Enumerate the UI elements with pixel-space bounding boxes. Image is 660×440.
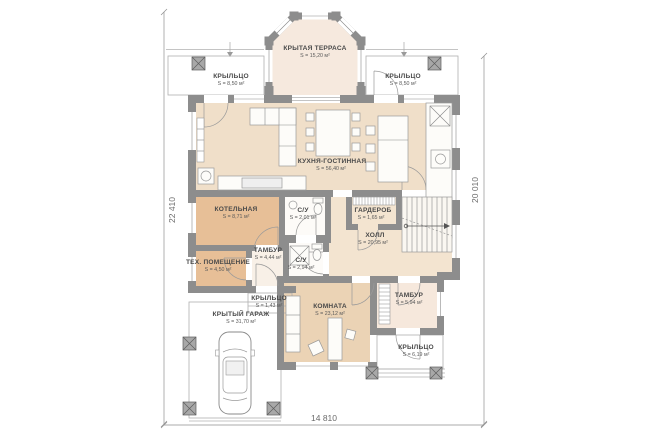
sink <box>289 201 297 209</box>
column <box>183 337 196 350</box>
label-porch-bottom-right: КРЫЛЬЦО <box>398 344 434 351</box>
desk <box>328 318 342 360</box>
wardrobe-shelf <box>353 197 395 205</box>
svg-text:S = 4,44 м²: S = 4,44 м² <box>255 255 282 261</box>
stairs <box>402 197 452 252</box>
label-vestibule-1: ТАМБУР <box>254 247 283 254</box>
floor-plan-canvas: КРЫТАЯ ТЕРРАСА S = 15,20 м² КРЫЛЬЦО S = … <box>0 0 660 440</box>
label-tech-room: ТЕХ. ПОМЕЩЕНИЕ <box>186 259 250 266</box>
label-covered-garage: КРЫТЫЙ ГАРАЖ <box>213 309 270 318</box>
svg-text:S = 15,20 м²: S = 15,20 м² <box>300 53 330 59</box>
label-hall: ХОЛЛ <box>365 232 384 239</box>
dimension-bottom: 14 810 <box>311 413 337 423</box>
column <box>366 367 378 379</box>
vestibule2-closet <box>379 284 390 324</box>
boiler-floor <box>196 197 279 245</box>
column <box>430 367 442 379</box>
svg-text:S = 8,50 м²: S = 8,50 м² <box>390 81 417 87</box>
label-wc-1: С/У <box>297 207 309 214</box>
column <box>192 57 205 70</box>
dimension-right: 20 010 <box>470 177 480 203</box>
svg-text:S = 23,12 м²: S = 23,12 м² <box>315 311 345 317</box>
label-room: КОМНАТА <box>313 303 347 310</box>
column <box>183 402 196 415</box>
label-wardrobe: ГАРДЕРОБ <box>355 207 392 214</box>
car <box>216 332 255 414</box>
floor-plan-drawing: КРЫТАЯ ТЕРРАСА S = 15,20 м² КРЫЛЬЦО S = … <box>0 0 660 440</box>
svg-text:S = 2,94 м²: S = 2,94 м² <box>288 265 315 271</box>
label-wc-2: С/У <box>295 257 307 264</box>
label-kitchen-living: КУХНЯ-ГОСТИННАЯ <box>298 158 367 165</box>
svg-text:S = 4,50 м²: S = 4,50 м² <box>205 267 232 273</box>
tv-bench <box>218 176 306 190</box>
label-porch-top-right: КРЫЛЬЦО <box>385 73 421 80</box>
fireplace <box>198 168 214 184</box>
svg-text:S = 31,70 м²: S = 31,70 м² <box>226 319 256 325</box>
svg-text:S = 6,19 м²: S = 6,19 м² <box>403 352 430 358</box>
svg-text:S = 2,01 м²: S = 2,01 м² <box>290 215 317 221</box>
column <box>267 402 280 415</box>
label-porch-small: КРЫЛЬЦО <box>251 295 287 302</box>
label-boiler-room: КОТЕЛЬНАЯ <box>214 206 257 213</box>
dining-table <box>306 110 360 156</box>
label-vestibule-2: ТАМБУР <box>395 292 424 299</box>
label-porch-top-left: КРЫЛЬЦО <box>213 73 249 80</box>
column <box>428 57 441 70</box>
chair <box>345 329 356 340</box>
label-covered-terrace: КРЫТАЯ ТЕРРАСА <box>283 45 346 52</box>
svg-text:S = 20,95 м²: S = 20,95 м² <box>358 240 388 246</box>
svg-text:S = 56,40 м²: S = 56,40 м² <box>316 166 346 172</box>
svg-text:S = 1,65 м²: S = 1,65 м² <box>358 215 385 221</box>
svg-text:S = 8,50 м²: S = 8,50 м² <box>218 81 245 87</box>
toilet-bowl <box>313 250 321 261</box>
svg-text:S = 1,43 м²: S = 1,43 м² <box>256 303 283 309</box>
svg-text:S = 5,94 м²: S = 5,94 м² <box>396 300 423 306</box>
svg-text:S = 8,71 м²: S = 8,71 м² <box>223 214 250 220</box>
toilet-tank <box>312 244 322 249</box>
dimension-left: 22 410 <box>167 197 177 223</box>
